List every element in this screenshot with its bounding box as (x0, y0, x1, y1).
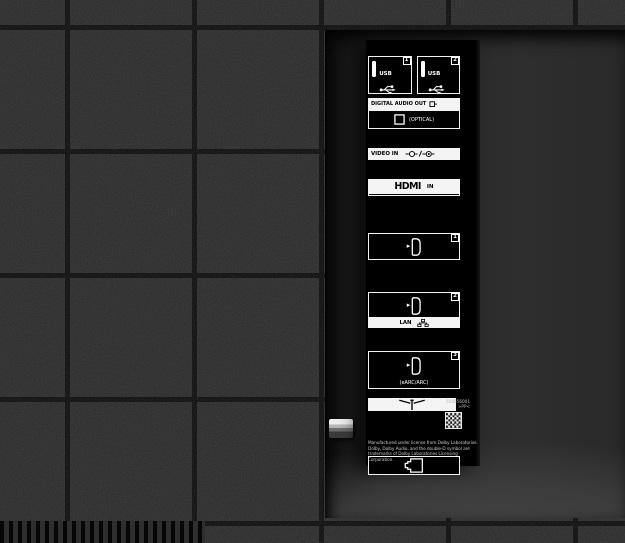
optical-port-label: (OPTICAL) (409, 117, 434, 123)
hdmi-connector-icon (411, 357, 421, 375)
lan-label: LAN (399, 320, 411, 326)
usb-slot-icon (372, 61, 376, 77)
usb-1-number-badge: 1 (403, 57, 411, 65)
part-number: 504556001 >PP< (436, 399, 470, 410)
digital-audio-out-header: DIGITAL AUDIO OUT (368, 98, 460, 110)
dolby-legal-text: Manufactured under license from Dolby La… (368, 441, 478, 463)
hdmi-in-header: HDMI IN (368, 180, 460, 194)
insert-arrow-icon: ▸ (407, 362, 411, 369)
av-jack-icons (405, 150, 435, 158)
usb-section: 1 USB (368, 56, 460, 94)
hdmi-port-3: 3 ▸ (eARC/ARC) (368, 351, 460, 389)
digital-audio-out-label: DIGITAL AUDIO OUT (371, 101, 426, 107)
hdmi-logo: HDMI (394, 182, 420, 192)
antenna-icon (397, 399, 427, 410)
hdmi-connector-icon (411, 297, 421, 315)
usb-label: USB (428, 71, 441, 77)
part-number-line2: >PP< (436, 404, 470, 409)
usb-2-number-badge: 2 (451, 57, 459, 65)
connector-recess: 1 USB (325, 30, 625, 518)
ventilation-slots (0, 521, 205, 543)
optical-port-icon (394, 114, 405, 125)
tv-rear-photo: 1 USB (0, 0, 625, 543)
network-icon (417, 319, 429, 327)
usb-port-1: 1 USB (368, 56, 412, 94)
metal-cable-clip (329, 419, 353, 438)
hdmi-1-number-badge: 1 (451, 234, 459, 242)
optical-port-box: (OPTICAL) (368, 110, 460, 129)
hdmi-in-label: IN (427, 184, 434, 190)
hdmi-connector-icon (411, 238, 421, 256)
video-in-label: VIDEO IN (371, 151, 398, 157)
usb-trident-icon (428, 85, 445, 94)
connector-label-panel: 1 USB (366, 40, 480, 466)
hdmi-port-1: 1 ▸ (368, 233, 460, 260)
hdmi-3-number-badge: 3 (451, 352, 459, 360)
usb-trident-icon (379, 85, 396, 94)
hdmi-2-number-badge: 2 (451, 293, 459, 301)
insert-arrow-icon: ▸ (407, 302, 411, 309)
insert-arrow-icon: ▸ (407, 243, 411, 250)
usb-label: USB (379, 71, 392, 77)
hdmi-port-2: 2 ▸ (368, 292, 460, 319)
qr-code (445, 412, 462, 429)
usb-slot-icon (421, 61, 425, 77)
earc-arc-label: (eARC/ARC) (369, 380, 459, 386)
video-in-header: VIDEO IN (368, 148, 460, 160)
usb-port-2: 2 USB (417, 56, 461, 94)
optical-out-icon (429, 101, 437, 108)
lan-header: LAN (368, 317, 460, 328)
